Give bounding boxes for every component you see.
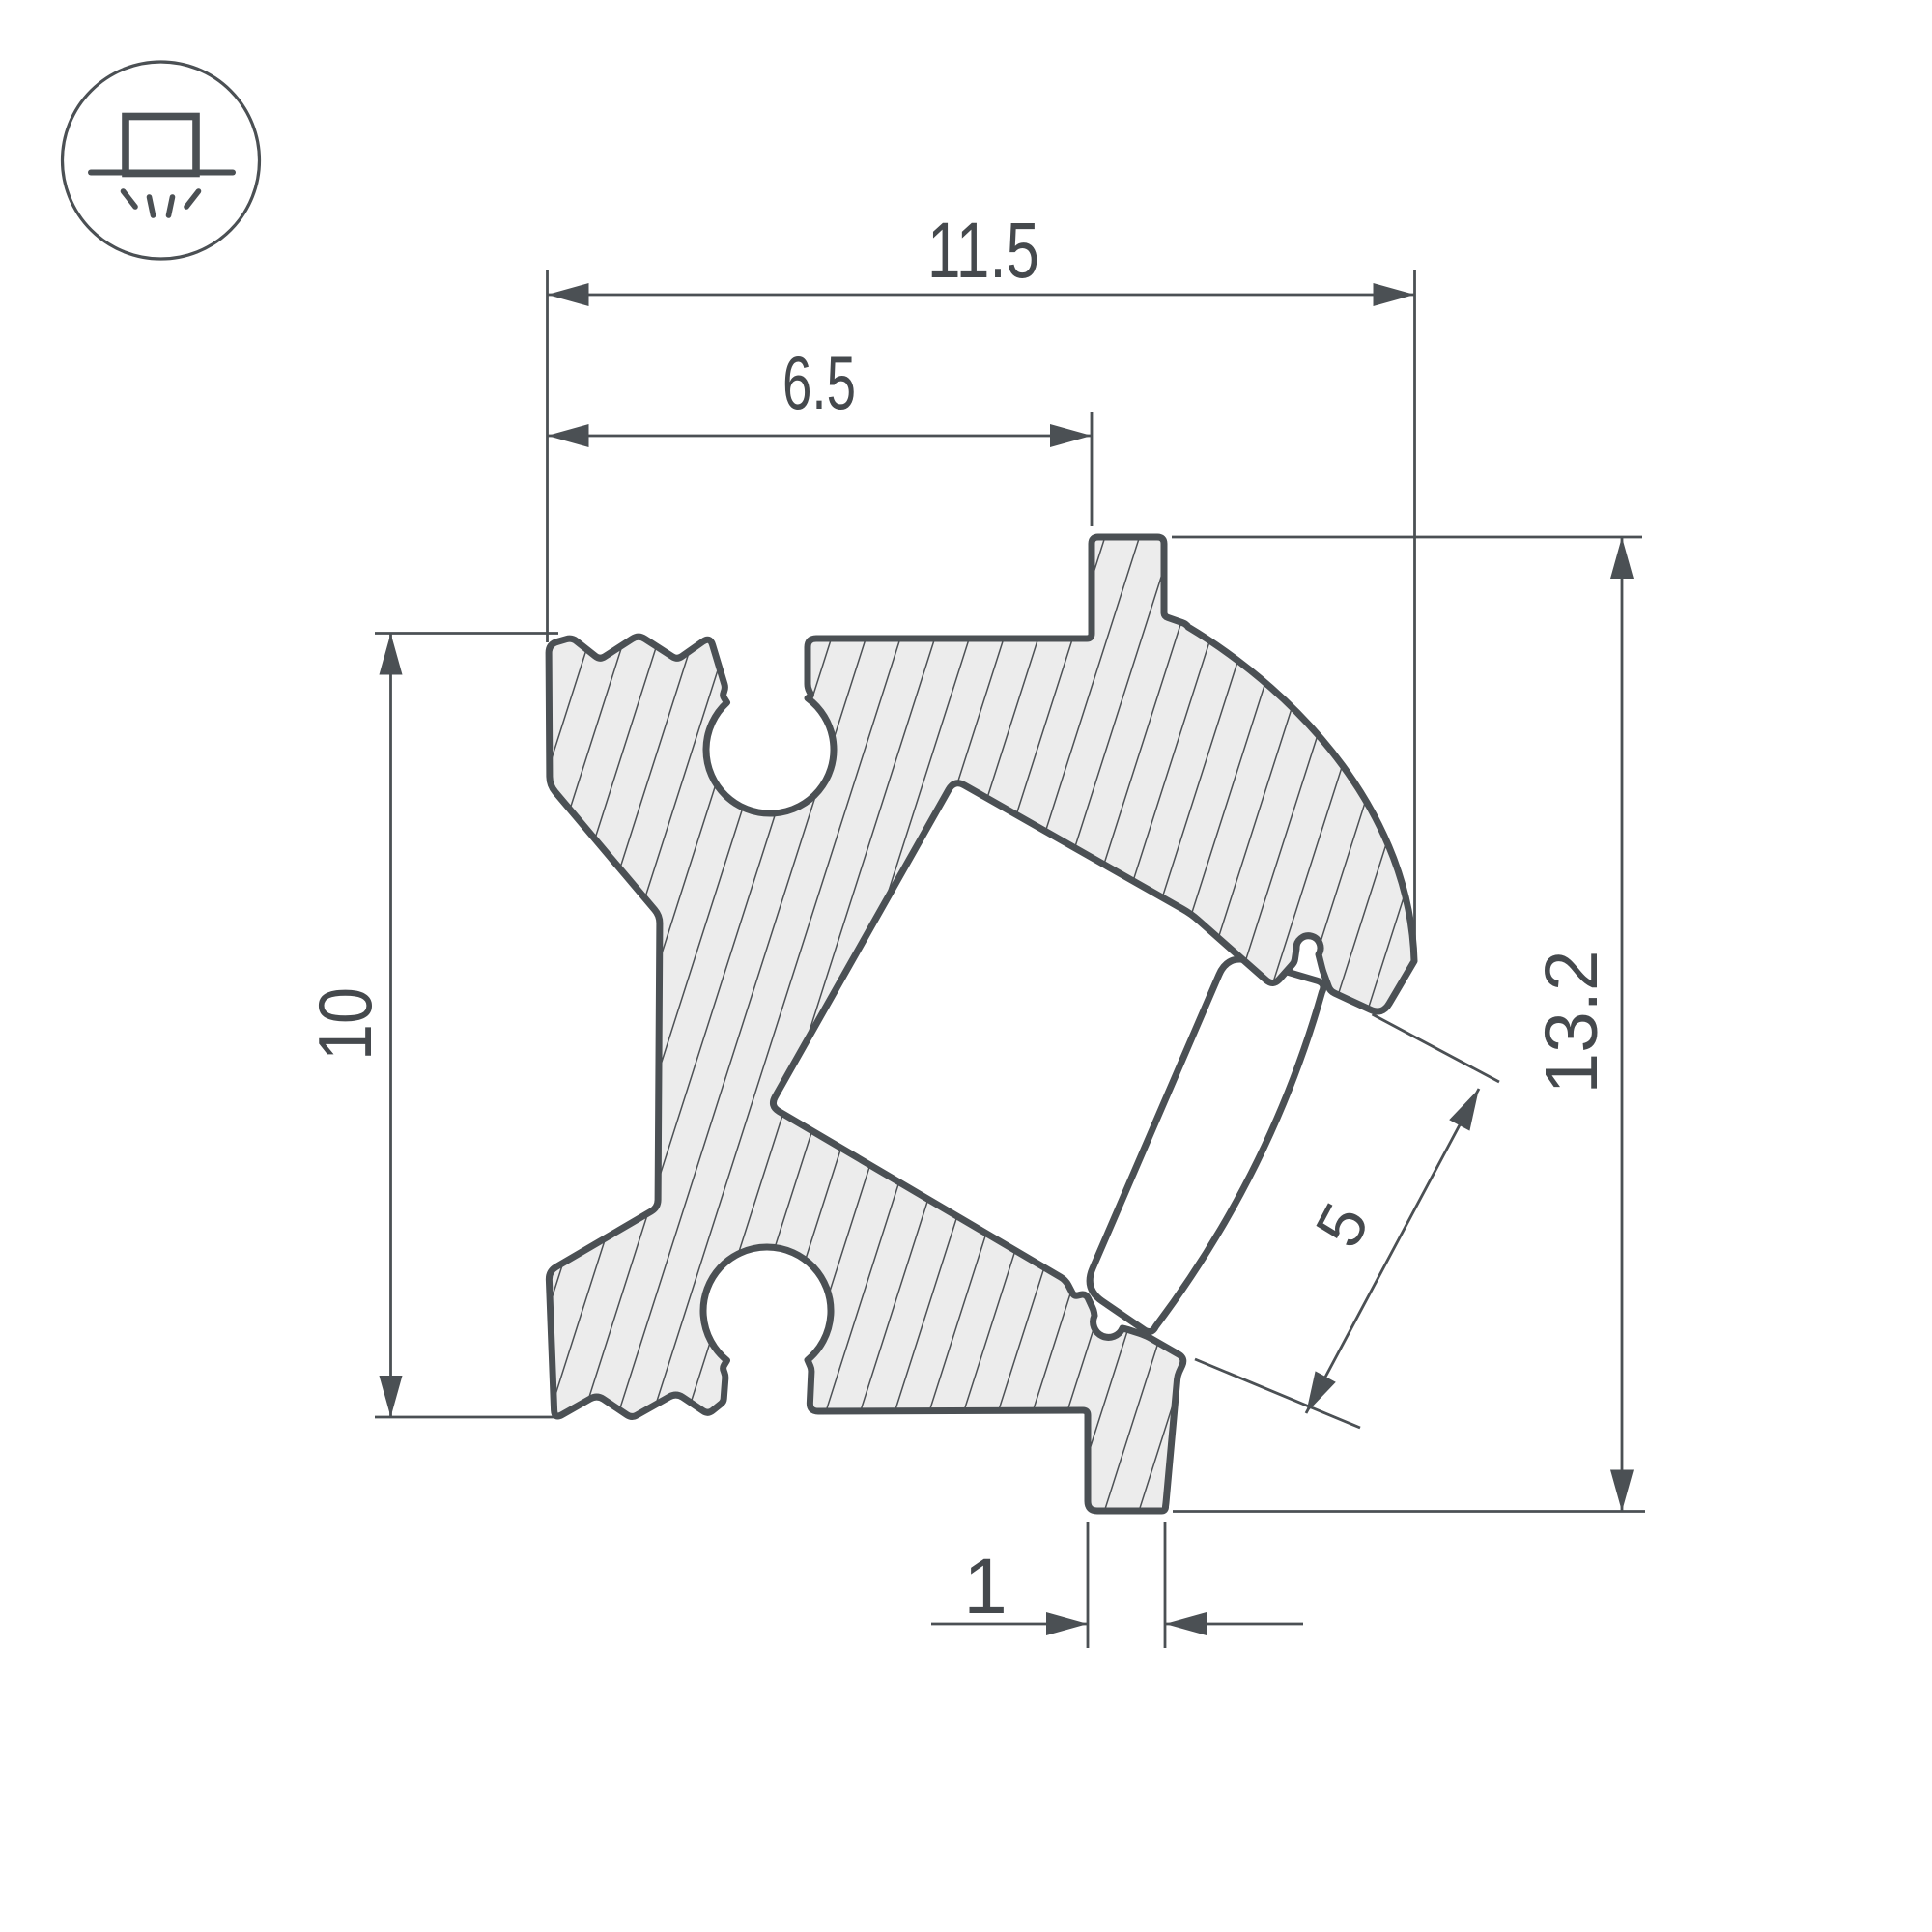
svg-text:6.5: 6.5 bbox=[782, 340, 856, 425]
svg-text:13.2: 13.2 bbox=[1530, 951, 1613, 1094]
svg-text:1: 1 bbox=[963, 1543, 1008, 1631]
svg-text:11.5: 11.5 bbox=[927, 207, 1039, 295]
svg-text:10: 10 bbox=[302, 987, 387, 1061]
